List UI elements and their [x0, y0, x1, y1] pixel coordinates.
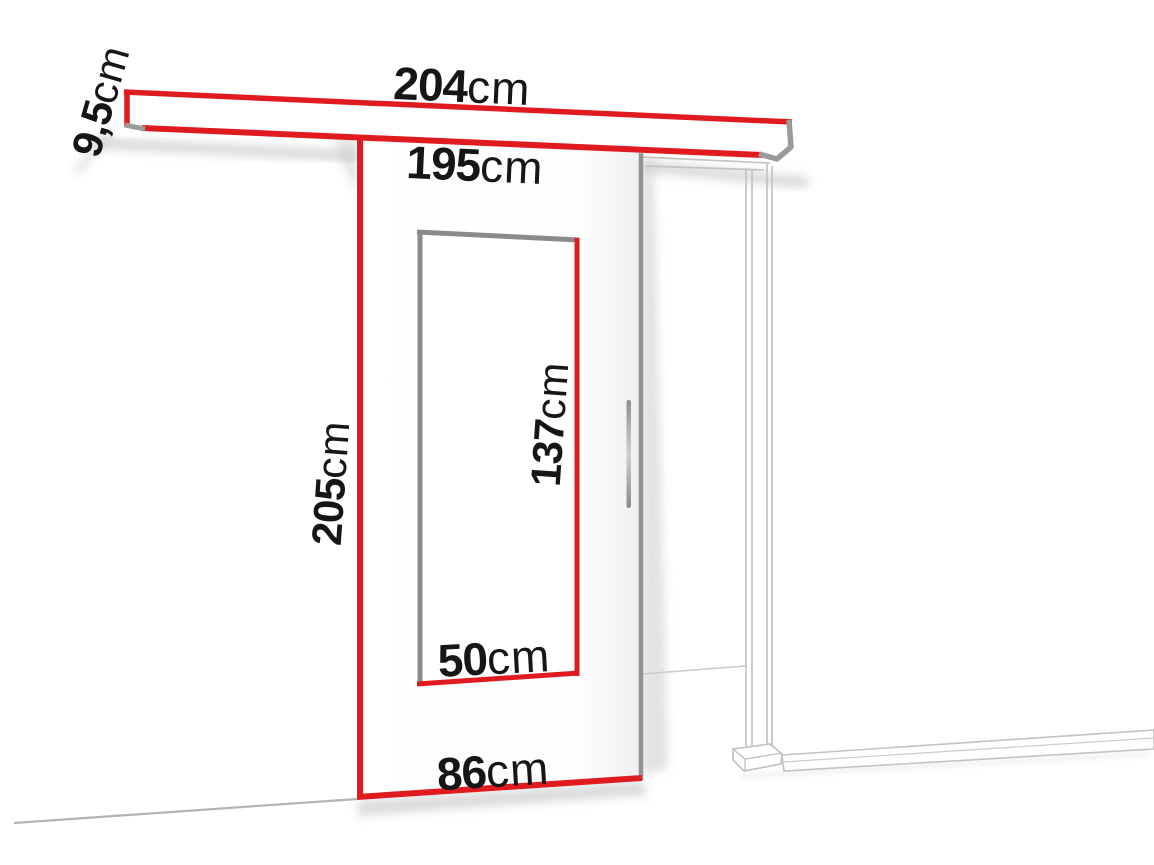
dim-glass-height-unit: cm [526, 360, 577, 421]
door-top-left-shadow [334, 136, 358, 195]
dim-glass-width-unit: cm [486, 629, 552, 684]
dim-opening-width: 195cm [405, 139, 544, 191]
dim-opening-width-unit: cm [479, 139, 545, 194]
dim-track-length-unit: cm [466, 60, 532, 115]
dim-door-width-unit: cm [484, 742, 550, 798]
dim-door-height-value: 205 [303, 477, 355, 547]
dim-glass-height: 137cm [525, 360, 576, 488]
door-handle [627, 400, 632, 508]
dim-door-width: 86cm [435, 745, 550, 798]
track-shadow-left [95, 143, 357, 156]
door-panel [357, 132, 643, 800]
dim-glass-width: 50cm [437, 632, 552, 684]
door-diagram-drawing [0, 0, 1154, 865]
dim-door-width-value: 86 [435, 745, 487, 800]
track-cap-left [125, 125, 145, 129]
sliding-door-dimension-diagram: 204cm 9,5cm 195cm 205cm 137cm 50cm 86cm [0, 0, 1154, 865]
door-right-shadow [642, 160, 668, 775]
floor-line-left [14, 799, 357, 823]
dim-door-height: 205cm [306, 419, 357, 547]
dim-glass-height-value: 137 [522, 418, 574, 488]
dim-track-length: 204cm [392, 60, 531, 112]
dim-door-height-unit: cm [307, 419, 358, 480]
dim-glass-width-value: 50 [436, 632, 488, 687]
dim-opening-width-value: 195 [405, 136, 481, 191]
dim-track-length-value: 204 [392, 57, 468, 112]
